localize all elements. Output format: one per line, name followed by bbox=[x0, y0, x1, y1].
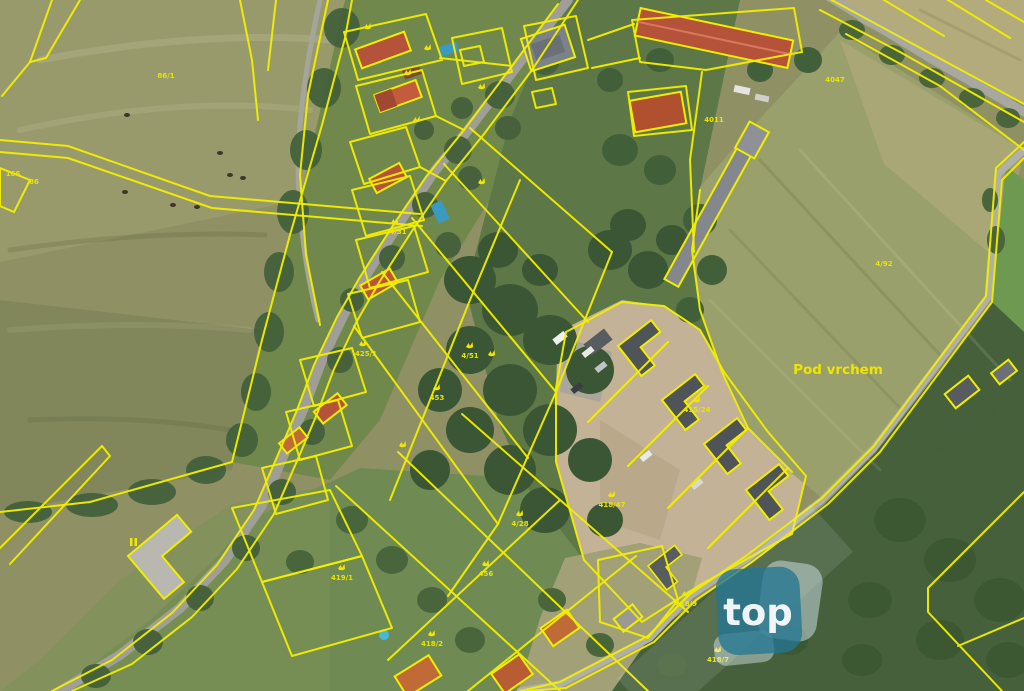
parcel-number-label: 86/1 bbox=[157, 72, 174, 80]
watermark-text: top bbox=[723, 591, 793, 634]
parcel-number-label: 86 bbox=[29, 178, 39, 186]
parcel-number-label: 418/47 bbox=[599, 501, 626, 509]
parcel-number-label: 456 bbox=[479, 570, 494, 578]
parcel-number-label: 453 bbox=[430, 394, 445, 402]
parcel-number-label: 425/1 bbox=[355, 350, 377, 358]
map-canvas[interactable]: 86/1 166 86 4/31 425/1 4/51 453 4/28 456… bbox=[0, 0, 1024, 691]
parcel-number-label: 415/24 bbox=[684, 406, 711, 414]
parcel-number-label: 419/1 bbox=[331, 574, 353, 582]
parcel-number-label: 4/28 bbox=[511, 520, 528, 528]
parcel-number-label: 166 bbox=[6, 170, 21, 178]
parcel-number-label: 4/92 bbox=[875, 260, 892, 268]
parcel-number-label: 4047 bbox=[825, 76, 845, 84]
parcel-number-label: 4/31 bbox=[389, 228, 406, 236]
parcel-number-label: 4/51 bbox=[461, 352, 478, 360]
parcel-number-label: 4011 bbox=[704, 116, 724, 124]
parcel-number-label: 418/2 bbox=[421, 640, 443, 648]
place-name-label: Pod vrchem bbox=[793, 362, 883, 378]
parcel-number-label: 418/9 bbox=[675, 600, 697, 608]
